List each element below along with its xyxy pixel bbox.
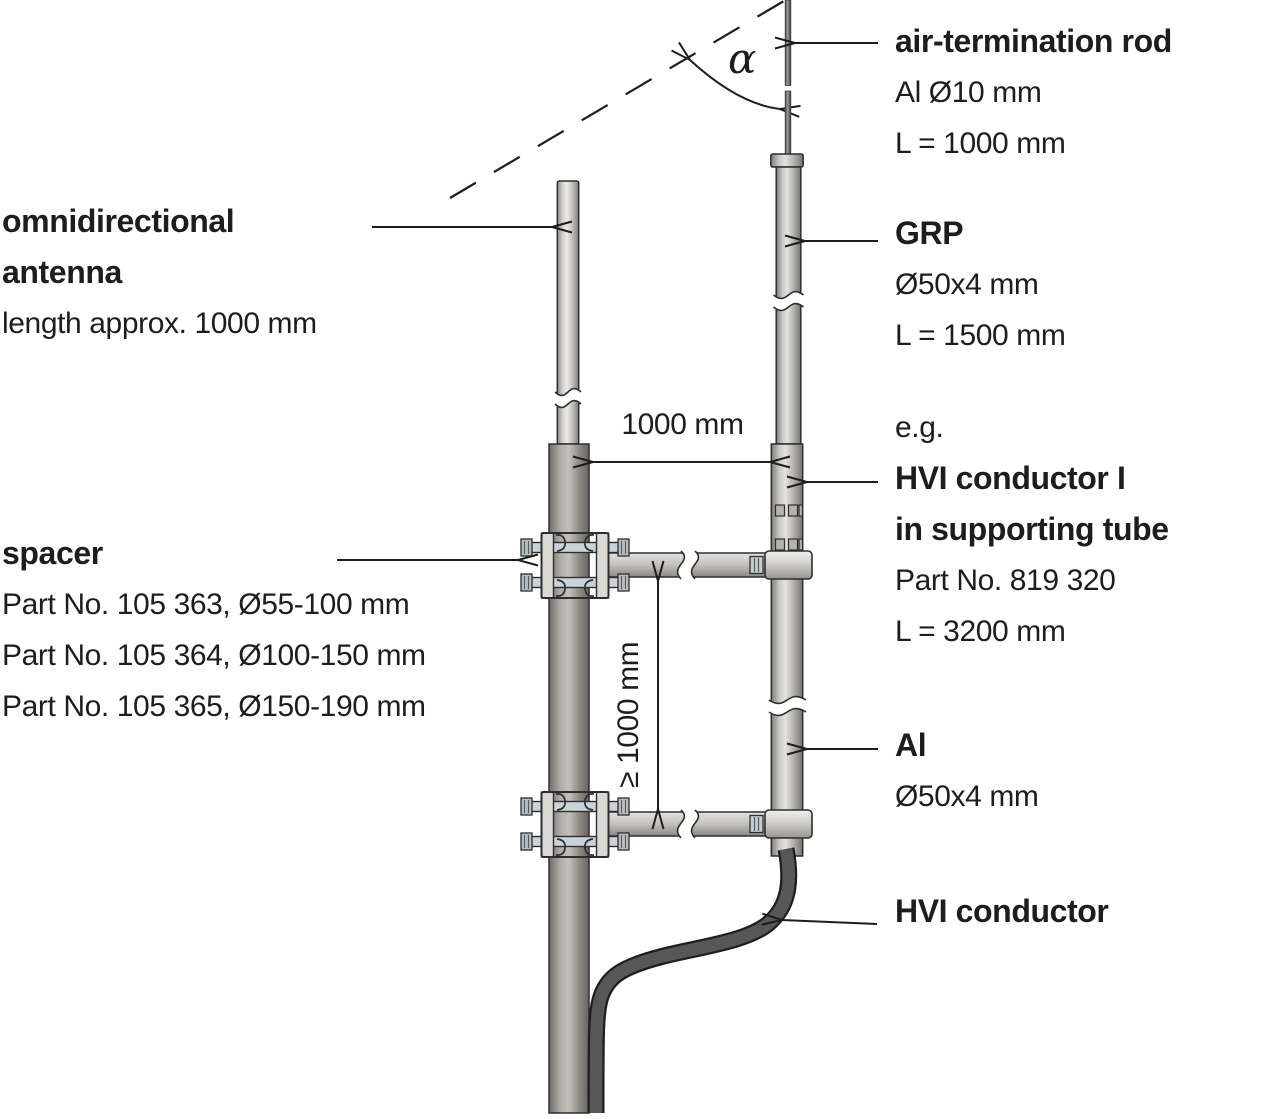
grp-tube [771, 154, 804, 444]
spacer-part-3: Part No. 105 365, Ø150-190 mm [2, 681, 426, 732]
arm-bolt [750, 557, 763, 574]
label-antenna: omnidirectional antenna length approx. 1… [2, 196, 317, 349]
spacer-part-1: Part No. 105 363, Ø55-100 mm [2, 579, 426, 630]
hvi-tube-prefix: e.g. [895, 402, 1169, 453]
grp-title: GRP [895, 208, 1065, 259]
air-rod-length: L = 1000 mm [895, 118, 1172, 169]
al-diameter: Ø50x4 mm [895, 771, 1039, 822]
dimension-vertical-text: ≥ 1000 mm [612, 642, 646, 788]
hvi-tube-title-line2: in supporting tube [895, 504, 1169, 555]
air-rod-title: air-termination rod [895, 16, 1172, 67]
grp-length: L = 1500 mm [895, 310, 1065, 361]
hvi-conductor-cable [596, 849, 789, 1113]
hvi-tube-title-line1: HVI conductor I [895, 453, 1169, 504]
label-spacer: spacer Part No. 105 363, Ø55-100 mm Part… [2, 528, 426, 732]
hvi-tube-length: L = 3200 mm [895, 606, 1169, 657]
air-rod-material: Al Ø10 mm [895, 67, 1172, 118]
supporting-tube [769, 444, 806, 856]
diagram-page: omnidirectional antenna length approx. 1… [0, 0, 1280, 1119]
label-hvi-conductor: HVI conductor [895, 886, 1108, 937]
label-grp: GRP Ø50x4 mm L = 1500 mm [895, 208, 1065, 361]
spacer-title: spacer [2, 528, 426, 579]
spacer-part-2: Part No. 105 364, Ø100-150 mm [2, 630, 426, 681]
label-al-tube: Al Ø50x4 mm [895, 720, 1039, 822]
leader-arrow-hvi-conductor [782, 920, 877, 924]
protective-angle-dashed-line [450, 0, 806, 198]
label-hvi-conductor-tube: e.g. HVI conductor I in supporting tube … [895, 402, 1169, 657]
al-title: Al [895, 720, 1039, 771]
arm-bolt [750, 816, 763, 833]
tube-collar [765, 551, 812, 579]
tube-collar [765, 810, 812, 838]
antenna-title-line1: omnidirectional [2, 196, 317, 247]
hvi-conductor-title: HVI conductor [895, 886, 1108, 937]
hvi-tube-part: Part No. 819 320 [895, 555, 1169, 606]
dimension-horizontal-text: 1000 mm [595, 408, 770, 442]
antenna-subtitle: length approx. 1000 mm [2, 298, 317, 349]
antenna-tube [555, 181, 581, 444]
antenna-title-line2: antenna [2, 247, 317, 298]
grp-diameter: Ø50x4 mm [895, 259, 1065, 310]
air-termination-rod [785, 0, 791, 157]
label-air-termination-rod: air-termination rod Al Ø10 mm L = 1000 m… [895, 16, 1172, 169]
angle-alpha-symbol: α [728, 38, 756, 80]
